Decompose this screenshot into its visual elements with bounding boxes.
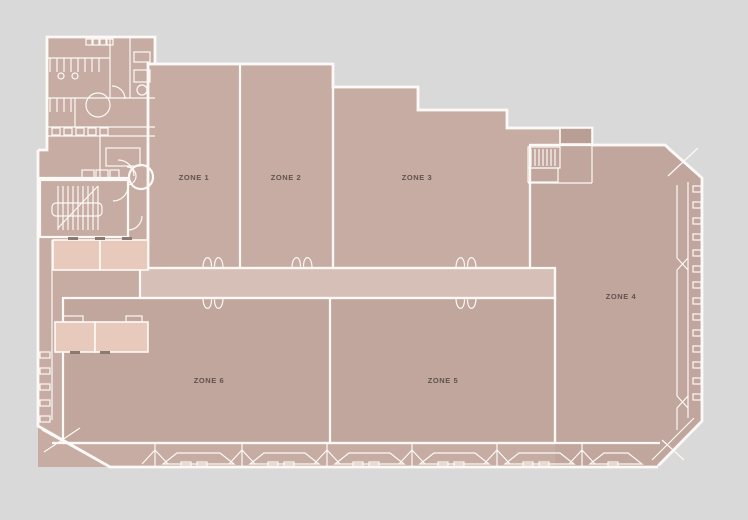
zone-6-label: ZONE 6 xyxy=(194,376,224,385)
elevator-cab xyxy=(95,322,148,352)
door-mark xyxy=(70,351,80,354)
elevator-cab xyxy=(100,240,148,270)
small-room xyxy=(560,128,592,144)
zone-5-region[interactable] xyxy=(330,298,555,443)
floor-plan-drawing: ZONE 1 ZONE 2 ZONE 3 ZONE 4 ZONE 5 ZONE … xyxy=(0,0,748,520)
zone-1-region[interactable] xyxy=(148,64,240,268)
elevator-cab xyxy=(53,240,100,270)
zone-2-region[interactable] xyxy=(240,64,333,268)
zone-6-region[interactable] xyxy=(63,298,330,443)
zone-1-label: ZONE 1 xyxy=(179,173,209,182)
door-mark xyxy=(100,351,110,354)
door-mark xyxy=(122,237,132,240)
zone-3-label: ZONE 3 xyxy=(402,173,432,182)
elevator-cab xyxy=(55,322,95,352)
zone-5-label: ZONE 5 xyxy=(428,376,458,385)
door-mark xyxy=(68,237,78,240)
door-mark xyxy=(95,237,105,240)
floor-plan-canvas: ZONE 1 ZONE 2 ZONE 3 ZONE 4 ZONE 5 ZONE … xyxy=(0,0,748,520)
zone-2-label: ZONE 2 xyxy=(271,173,301,182)
zone-4-label: ZONE 4 xyxy=(606,292,637,301)
corridor-region xyxy=(140,268,555,298)
